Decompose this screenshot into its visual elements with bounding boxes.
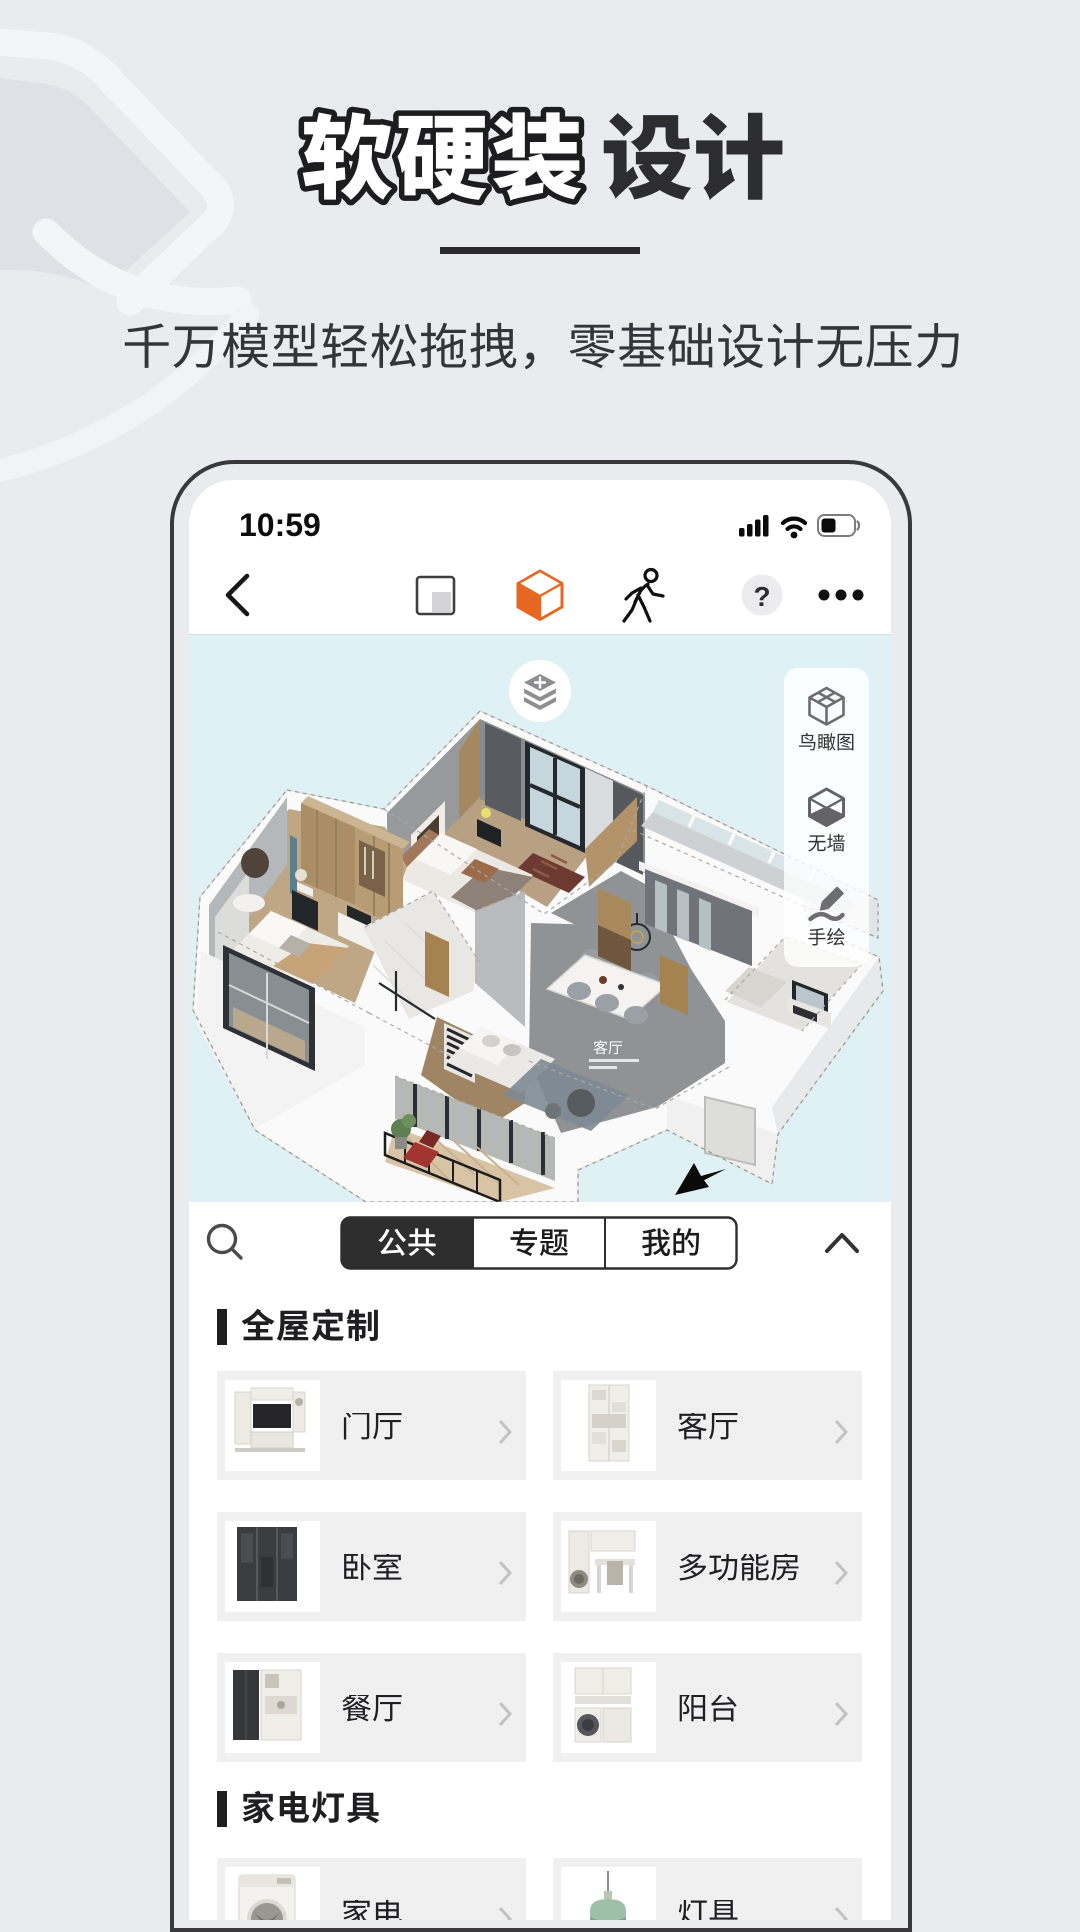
svg-text:?: ?: [753, 581, 770, 612]
